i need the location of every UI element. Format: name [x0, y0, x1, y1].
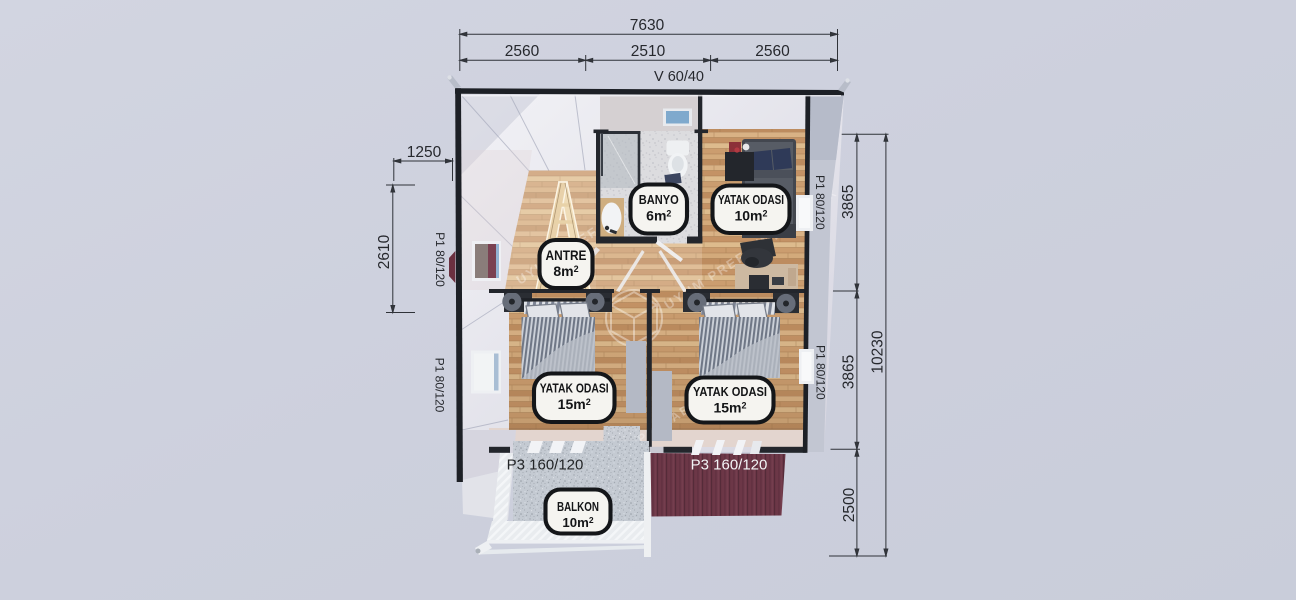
svg-text:3865: 3865 — [841, 355, 858, 389]
svg-text:YATAK ODASI: YATAK ODASI — [718, 193, 784, 207]
svg-text:P1 80/120: P1 80/120 — [813, 175, 827, 230]
svg-text:2560: 2560 — [505, 43, 540, 60]
svg-text:2610: 2610 — [376, 234, 393, 269]
svg-text:3865: 3865 — [840, 185, 857, 219]
svg-text:1250: 1250 — [407, 144, 442, 161]
svg-text:BALKON: BALKON — [557, 499, 599, 514]
svg-text:2510: 2510 — [631, 43, 666, 60]
svg-text:7630: 7630 — [630, 17, 665, 34]
svg-text:2500: 2500 — [841, 487, 858, 522]
svg-text:P3 160/120: P3 160/120 — [507, 457, 584, 474]
svg-text:YATAK ODASI: YATAK ODASI — [540, 382, 609, 396]
svg-text:V 60/40: V 60/40 — [654, 69, 704, 85]
svg-text:ANTRE: ANTRE — [546, 247, 587, 263]
svg-text:P3 160/120: P3 160/120 — [691, 457, 768, 474]
svg-text:P1 80/120: P1 80/120 — [433, 358, 447, 413]
svg-text:YATAK ODASI: YATAK ODASI — [693, 385, 767, 399]
svg-text:P1 80/120: P1 80/120 — [814, 345, 828, 400]
svg-text:10230: 10230 — [870, 330, 887, 373]
svg-text:P1 80/120: P1 80/120 — [433, 232, 447, 287]
svg-text:2560: 2560 — [755, 43, 790, 60]
svg-text:BANYO: BANYO — [639, 192, 679, 207]
